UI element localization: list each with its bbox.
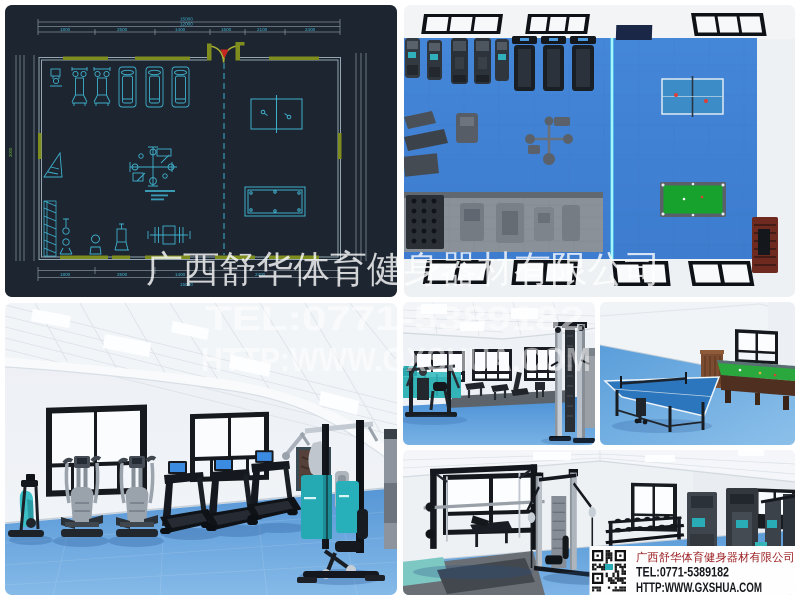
svg-text:TEL:0771-5389182: TEL:0771-5389182 (205, 300, 584, 338)
svg-text:TEL:0771-5389182: TEL:0771-5389182 (636, 565, 729, 580)
svg-text:HTTP:WWW.GXSHUA.COM: HTTP:WWW.GXSHUA.COM (201, 341, 591, 378)
svg-text:HTTP:WWW.GXSHUA.COM: HTTP:WWW.GXSHUA.COM (636, 580, 762, 595)
